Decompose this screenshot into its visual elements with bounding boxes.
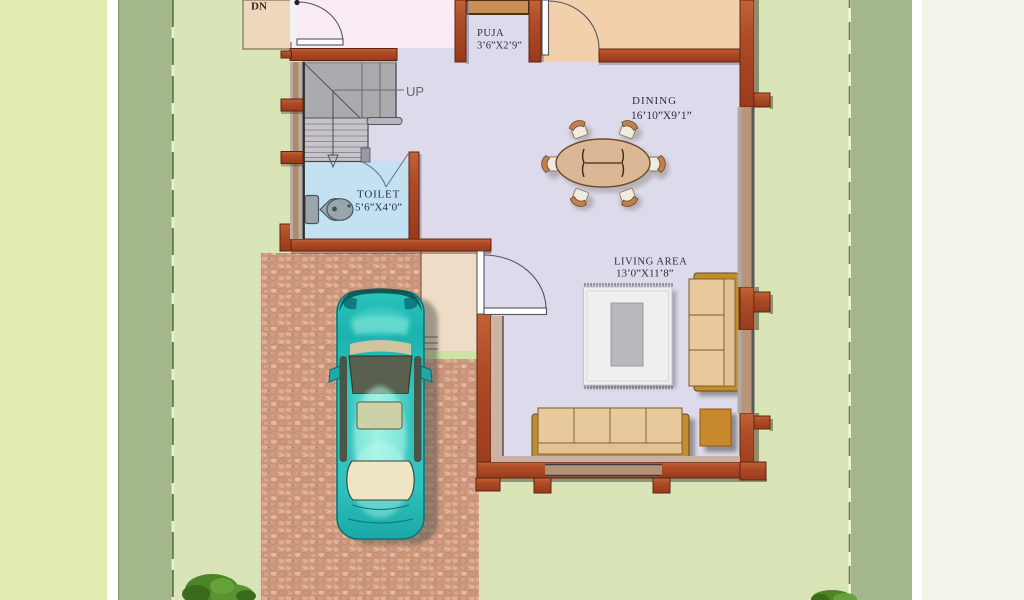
svg-text:DINING: DINING (632, 95, 677, 107)
svg-text:LIVING AREA: LIVING AREA (614, 257, 687, 268)
svg-text:3’6”X2’9”: 3’6”X2’9” (477, 41, 522, 52)
svg-text:DN: DN (251, 1, 267, 13)
svg-text:5’6”X4’0”: 5’6”X4’0” (355, 202, 402, 214)
svg-text:PUJA: PUJA (477, 28, 504, 39)
svg-text:13’0”X11’8”: 13’0”X11’8” (616, 268, 674, 280)
svg-text:TOILET: TOILET (357, 189, 400, 201)
svg-text:UP: UP (406, 84, 424, 99)
svg-text:16’10”X9’1”: 16’10”X9’1” (631, 110, 692, 122)
